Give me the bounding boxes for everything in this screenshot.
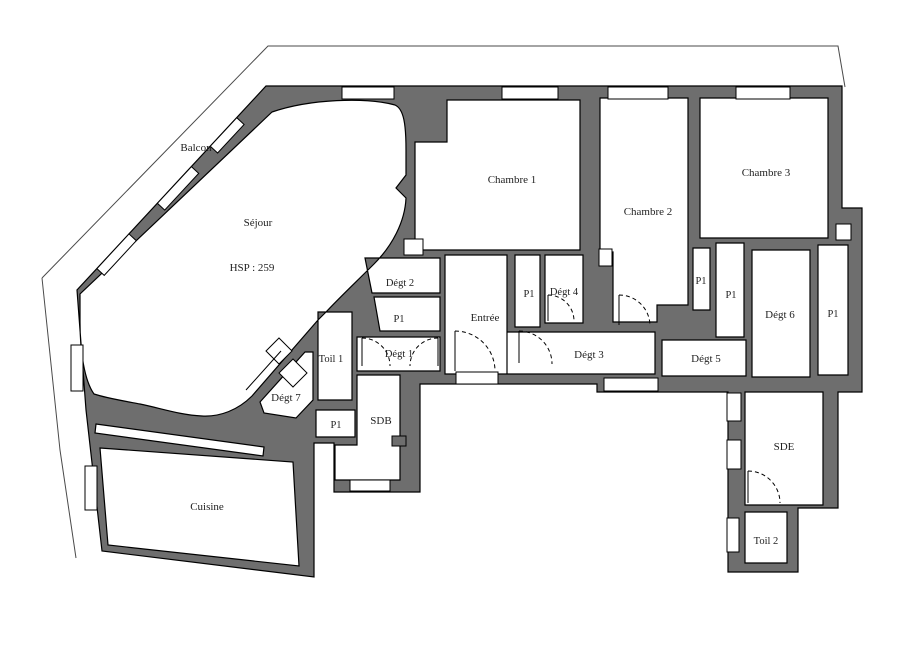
room-label-degt-2: Dégt 2 [386,278,414,289]
room-label-sde: SDE [774,441,795,453]
room-label-degt-7: Dégt 7 [271,392,301,404]
room-label-toil-1: Toil 1 [319,354,344,365]
window-sdb [350,480,390,491]
room-label-p1-entree: P1 [523,289,534,300]
room-label-degt-3: Dégt 3 [574,349,604,361]
niche-right [836,224,851,240]
room-label-chambre-2: Chambre 2 [624,206,673,218]
floor-plan-canvas: BalconSéjourHSP : 259Chambre 1Chambre 2C… [0,0,901,646]
room-label-degt-5: Dégt 5 [691,353,721,365]
window-toil2 [727,518,739,552]
entree-door-opening [456,372,498,384]
window-sde-1 [727,393,741,421]
room-label-entree: Entrée [471,312,500,324]
window-sejour-west [71,345,83,391]
room-label-p1-d: P1 [330,420,341,431]
niche-chambre2 [599,249,612,266]
room-label-degt-6: Dégt 6 [765,309,795,321]
room-label-cuisine: Cuisine [190,501,224,513]
room-label-balcon: Balcon [180,142,212,154]
room-label-toil-2: Toil 2 [754,536,779,547]
sdb-wall-stub [392,436,406,446]
room-label-degt-1: Dégt 1 [385,349,413,360]
room-label-sdb: SDB [370,415,391,427]
window-chambre3 [736,87,790,99]
main-entrance-opening [604,378,658,391]
window-sde-2 [727,440,741,469]
window-chambre1 [502,87,558,99]
window-cuisine [85,466,97,510]
room-label-chambre-1: Chambre 1 [488,174,537,186]
room-label-p1-b: P1 [725,290,736,301]
room-label-degt-4: Dégt 4 [550,287,579,298]
room-label-p1-degt2: P1 [393,314,404,325]
window-chambre2 [608,87,668,99]
window-sejour-top [342,87,394,99]
room-label-sejour-hsp: HSP : 259 [230,262,275,274]
room-label-p1-a: P1 [695,276,706,287]
floor-plan-drawing: BalconSéjourHSP : 259Chambre 1Chambre 2C… [0,0,901,646]
room-label-p1-f: P1 [827,309,838,320]
room-label-sejour: Séjour [244,217,273,229]
room-label-chambre-3: Chambre 3 [742,167,791,179]
niche-sejour [404,239,423,255]
